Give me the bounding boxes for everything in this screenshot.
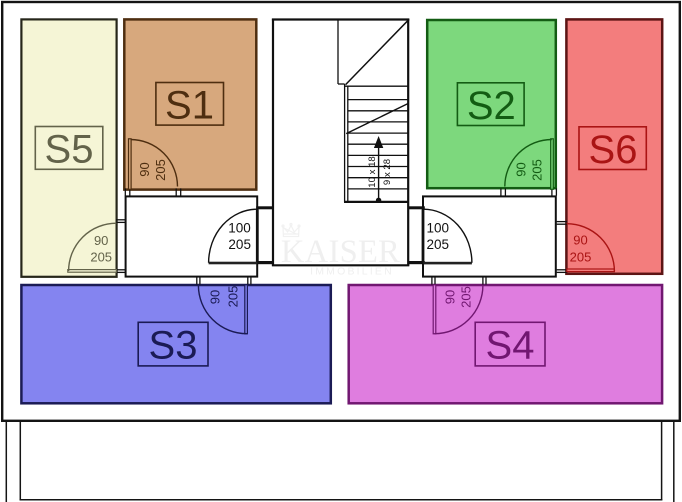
svg-text:205: 205 xyxy=(459,286,474,308)
svg-text:205: 205 xyxy=(153,159,168,181)
svg-text:S5: S5 xyxy=(45,127,94,171)
svg-text:90: 90 xyxy=(443,290,458,304)
svg-text:S1: S1 xyxy=(165,83,214,127)
svg-text:100: 100 xyxy=(427,220,450,235)
svg-text:90: 90 xyxy=(94,233,108,248)
svg-text:205: 205 xyxy=(225,286,240,308)
svg-text:S6: S6 xyxy=(589,128,638,172)
svg-text:205: 205 xyxy=(529,159,544,181)
svg-text:IMMOBILIEN: IMMOBILIEN xyxy=(310,266,394,278)
svg-text:90: 90 xyxy=(514,162,529,176)
svg-text:90: 90 xyxy=(573,232,587,247)
svg-text:90: 90 xyxy=(137,162,152,176)
svg-text:10 x 18: 10 x 18 xyxy=(367,156,378,187)
svg-text:205: 205 xyxy=(90,249,112,264)
svg-text:205: 205 xyxy=(570,250,592,265)
svg-text:205: 205 xyxy=(228,237,251,252)
svg-text:S2: S2 xyxy=(467,84,516,128)
svg-text:90: 90 xyxy=(208,290,223,304)
svg-text:9 x 28: 9 x 28 xyxy=(382,159,393,185)
svg-text:100: 100 xyxy=(228,220,251,235)
svg-text:205: 205 xyxy=(427,237,450,252)
svg-text:S3: S3 xyxy=(149,324,198,368)
svg-text:S4: S4 xyxy=(486,324,535,368)
